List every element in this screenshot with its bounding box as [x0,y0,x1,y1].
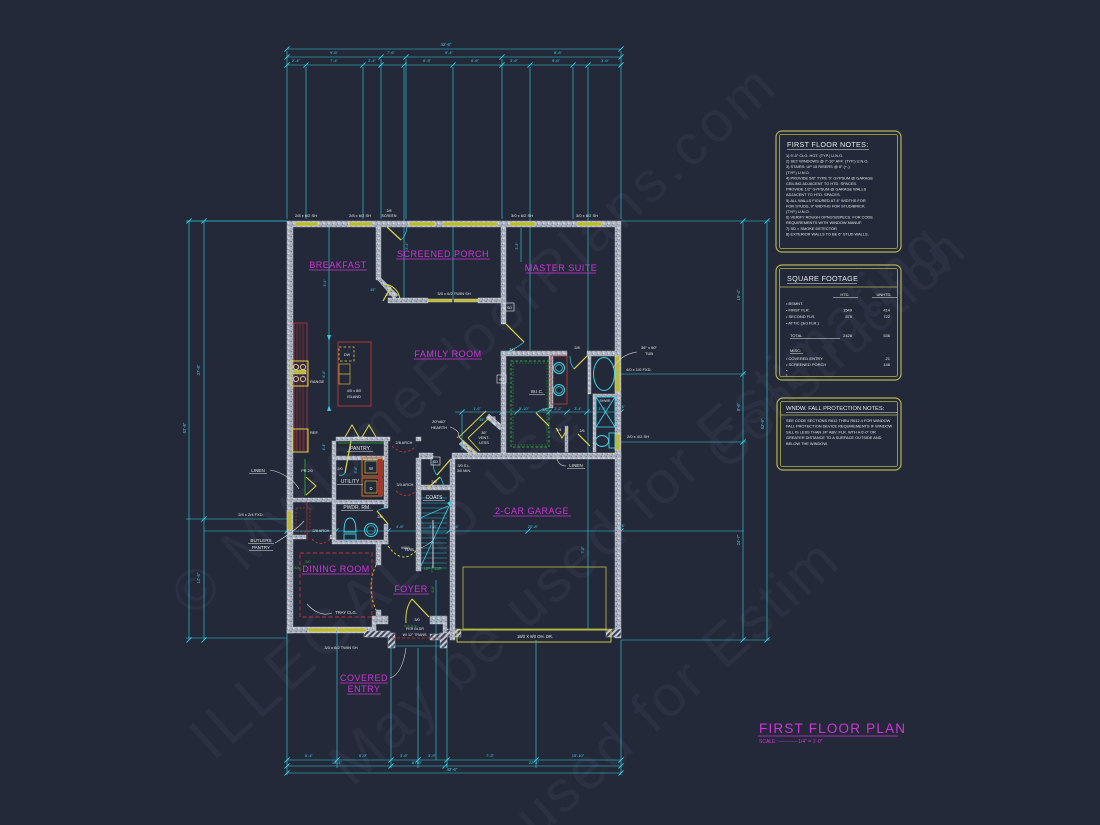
svg-text:• BSMNT.: • BSMNT. [786,301,803,306]
svg-text:5'-6": 5'-6" [354,466,358,474]
svg-text:6'-0": 6'-0" [322,370,326,378]
svg-text:6'-9": 6'-9" [359,753,368,758]
svg-text:BREAKFAST: BREAKFAST [309,260,367,270]
svg-text:LINEN: LINEN [569,463,583,468]
svg-text:• SECOND FLR.: • SECOND FLR. [786,314,815,319]
svg-text:1549: 1549 [843,308,853,313]
svg-text:2/8 x 6/2 SH: 2/8 x 6/2 SH [349,213,371,218]
svg-text:3/0: 3/0 [509,348,514,352]
svg-text:36" x 60": 36" x 60" [641,345,658,350]
svg-text:6': 6' [456,524,459,529]
svg-text:SHWR: SHWR [600,399,611,403]
svg-text:24'-7": 24'-7" [736,534,741,545]
svg-text:21: 21 [886,356,891,361]
svg-text:6'-8": 6'-8" [431,585,435,593]
svg-text:ADJACENT TO HTD. SPACES.: ADJACENT TO HTD. SPACES. [786,192,841,197]
svg-text:W: W [369,466,373,471]
svg-text:MAIL: MAIL [401,545,411,550]
svg-text:42'-6": 42'-6" [441,42,452,47]
svg-text:FALL PROTECTION DEVICE REQUIRE: FALL PROTECTION DEVICE REQUIREMENTS IF W… [786,424,893,429]
svg-text:3'-6": 3'-6" [400,753,409,758]
svg-text:2/4 x 2/4 FXD.: 2/4 x 2/4 FXD. [238,512,264,517]
svg-text:8) EXTERIOR WALLS TO BE 6" STU: 8) EXTERIOR WALLS TO BE 6" STUD WALLS. [786,231,869,236]
svg-text:2'-4": 2'-4" [368,58,377,63]
svg-text:5) ALL WALLS FIGURED AT 4" WID: 5) ALL WALLS FIGURED AT 4" WIDTHS FOR [786,198,866,203]
svg-text:2/8 ARCH: 2/8 ARCH [313,529,330,533]
svg-text:2/8 FR: 2/8 FR [385,293,397,297]
svg-text:SD: SD [433,460,439,464]
svg-text:3'-4": 3'-4" [574,407,582,411]
svg-text:6': 6' [622,524,625,528]
svg-text:2428: 2428 [843,333,853,338]
svg-text:W/ 12" TRANS.: W/ 12" TRANS. [403,633,428,637]
svg-text:3'-4": 3'-4" [515,242,519,250]
svg-text:3/0 x 6/2 SH: 3/0 x 6/2 SH [576,213,598,218]
svg-text:SEE CODE SECTIONS R612 THRU R6: SEE CODE SECTIONS R612 THRU R612.4 FOR W… [786,418,891,423]
svg-text:3/0 x 6/2 TWIN SH: 3/0 x 6/2 TWIN SH [324,645,357,650]
svg-text:20"x60": 20"x60" [432,419,446,424]
svg-text:BELOW THE WINDOW.: BELOW THE WINDOW. [786,441,828,446]
svg-text:2/8 ARCH: 2/8 ARCH [396,441,413,445]
svg-text:9'-6": 9'-6" [330,50,339,55]
svg-text:MASTER SUITE: MASTER SUITE [525,263,598,273]
svg-text:HEARTH: HEARTH [431,425,447,430]
svg-text:PR 2/0: PR 2/0 [354,436,366,440]
svg-text:FAMILY ROOM: FAMILY ROOM [414,349,481,359]
svg-text:MISC:: MISC: [790,348,801,353]
svg-text:VENT-: VENT- [478,436,490,440]
svg-text:• SCREENED PORCH: • SCREENED PORCH [786,362,826,367]
svg-text:ENTRY: ENTRY [348,684,381,694]
svg-text:SCREEN: SCREEN [382,214,397,218]
svg-text:3/0 MIN.: 3/0 MIN. [457,469,471,473]
svg-text:2/6: 2/6 [580,429,585,433]
svg-text:2-CAR GARAGE: 2-CAR GARAGE [495,506,569,516]
svg-text:2/0 x 4/2 SH: 2/0 x 4/2 SH [627,434,649,439]
svg-text:3/0: 3/0 [414,618,419,622]
svg-text:5'-6": 5'-6" [552,58,561,63]
svg-text:146: 146 [883,362,890,367]
svg-text:SQUARE FOOTAGE: SQUARE FOOTAGE [787,274,858,283]
svg-text:4/0 x 8/0: 4/0 x 8/0 [347,389,362,393]
svg-text:PROVIDE 1/2" GYPSUM @ GARAGE W: PROVIDE 1/2" GYPSUM @ GARAGE WALLS [786,187,867,192]
svg-text:36": 36" [481,431,487,435]
svg-text:4) PROVIDE 5/8" TYPE 'X' GYPSU: 4) PROVIDE 5/8" TYPE 'X' GYPSUM @ GARAGE [786,175,873,180]
svg-text:TOTAL: TOTAL [790,333,803,338]
svg-text:3'-4": 3'-4" [323,279,327,287]
svg-text:45°: 45° [479,418,485,422]
svg-text:FOR STUDS, 9" WIDTHS FOR STUD/: FOR STUDS, 9" WIDTHS FOR STUD/BRICK. [786,203,866,208]
svg-text:7'-6": 7'-6" [387,50,396,55]
svg-text:9'-4": 9'-4" [445,50,454,55]
svg-text:8'-6": 8'-6" [736,402,741,411]
svg-text:3/0 x 6/2 TWIN SH: 3/0 x 6/2 TWIN SH [437,291,470,296]
svg-text:3'-9": 3'-9" [428,753,437,758]
svg-text:6) VERIFY ROUGH OPNG'S/SPECS.: 6) VERIFY ROUGH OPNG'S/SPECS. FOR CODE [786,215,873,220]
svg-text:COATS: COATS [426,495,444,501]
svg-text:FIRST FLOOR PLAN: FIRST FLOOR PLAN [759,721,906,736]
svg-text:• ATTIC (3rd FLR.): • ATTIC (3rd FLR.) [786,321,820,326]
svg-text:8'-6": 8'-6" [554,50,563,55]
svg-text:20'-8": 20'-8" [528,524,539,529]
svg-text:2/0: 2/0 [337,467,342,471]
svg-text:(TYP.) U.N.O.: (TYP.) U.N.O. [786,170,810,175]
svg-text:7'-4": 7'-4" [330,58,339,63]
svg-text:TUB: TUB [645,351,653,356]
svg-text:37'-8": 37'-8" [196,364,201,375]
svg-text:REQUIREMENTS WITH WINDOW MANUF: REQUIREMENTS WITH WINDOW MANUF. [786,220,862,225]
svg-text:TRAY CLG.: TRAY CLG. [335,610,357,615]
svg-text:4'-6": 4'-6" [396,524,405,529]
svg-text:W.I.C.: W.I.C. [531,389,544,394]
svg-text:3/0 x 6/2 SH: 3/0 x 6/2 SH [511,213,533,218]
svg-text:(TYP.) U.N.O.: (TYP.) U.N.O. [786,209,810,214]
svg-text:15R: 15R [434,566,442,571]
svg-text:3'-6": 3'-6" [510,58,519,63]
svg-text:SD: SD [499,378,505,382]
svg-text:PWDR. RM.: PWDR. RM. [343,505,370,511]
svg-text:2/8: 2/8 [574,346,579,350]
svg-text:6'-10": 6'-10" [412,760,423,765]
svg-text:SCREENED PORCH: SCREENED PORCH [397,249,489,259]
svg-text:PR 2/0: PR 2/0 [301,469,313,473]
svg-text:LINEN: LINEN [251,468,265,473]
svg-text:6': 6' [622,405,625,409]
svg-text:FIRST FLOOR NOTES:: FIRST FLOOR NOTES: [787,140,869,149]
svg-text:UNHTD.: UNHTD. [876,292,891,297]
svg-text:5'-10": 5'-10" [519,407,529,411]
svg-text:42'-6": 42'-6" [447,767,458,772]
svg-text:7'-3": 7'-3" [486,753,495,758]
svg-text:2/6: 2/6 [377,515,382,519]
svg-text:6'-6": 6'-6" [471,58,480,63]
svg-text:DW: DW [344,353,351,357]
svg-text:2/6: 2/6 [431,480,436,484]
svg-text:52'-8": 52'-8" [182,422,187,433]
svg-text:7'-0": 7'-0" [581,546,585,554]
svg-text:3) STAIRS: UP 15 RISERS @ 8" (: 3) STAIRS: UP 15 RISERS @ 8" (+-) [786,164,850,169]
svg-text:SCALE: ------------1/4" = 1'-0: SCALE: ------------1/4" = 1'-0" [759,739,823,745]
svg-text:14'-5": 14'-5" [196,572,201,583]
svg-text:22'-1": 22'-1" [529,760,540,765]
svg-text:2'-2": 2'-2" [554,407,562,411]
svg-text:8/4: 8/4 [294,566,299,570]
svg-text:536: 536 [883,333,890,338]
svg-text:6'-3": 6'-3" [423,58,432,63]
svg-text:REF.: REF. [310,430,319,435]
svg-text:PANTRY: PANTRY [252,545,270,550]
svg-text:875: 875 [845,314,852,319]
svg-text:ISLAND: ISLAND [347,395,361,399]
svg-text:7) SD = SMOKE DETECTOR: 7) SD = SMOKE DETECTOR [786,226,837,231]
svg-text:2/8: 2/8 [387,209,392,213]
svg-text:HTD.: HTD. [840,292,849,297]
svg-text:SILL IS LESS THAN 24" ABV. FLR: SILL IS LESS THAN 24" ABV. FLR. WTH A 6'… [786,429,876,434]
svg-text:15'-4": 15'-4" [736,289,741,300]
svg-text:SD: SD [507,306,513,310]
svg-text:CEILING ADJACENT TO HTD. SPACE: CEILING ADJACENT TO HTD. SPACES. [786,181,857,186]
svg-text:PANTRY: PANTRY [350,446,370,452]
svg-text:1) 9'-0" CLG. HGT. (TYP.) U.N: 1) 9'-0" CLG. HGT. (TYP.) U.N.O. [786,153,843,158]
svg-text:UP: UP [424,566,430,571]
svg-text:LESS: LESS [479,441,489,445]
svg-text:4'-4": 4'-4" [322,443,326,451]
svg-text:3/0 S.L.: 3/0 S.L. [457,464,470,468]
svg-text:2'-4": 2'-4" [292,58,301,63]
svg-text:2) SET WINDOWS @ 7'-10" AFF. (: 2) SET WINDOWS @ 7'-10" AFF. (TYP.) U.N.… [786,159,868,164]
svg-text:1'-6": 1'-6" [473,407,481,411]
svg-text:15'-10": 15'-10" [572,753,585,758]
svg-text:PER BLDR: PER BLDR [406,627,424,631]
svg-text:1/4: 1/4 [557,428,562,432]
svg-text:45°: 45° [370,288,376,292]
svg-text:414: 414 [883,308,890,313]
svg-text:BUTLERS: BUTLERS [250,538,271,543]
svg-text:COVERED: COVERED [340,673,388,683]
svg-text:18/0 X 8/0 OH. DR.: 18/0 X 8/0 OH. DR. [517,634,553,639]
svg-text:4/0 x 1/0 FXD.: 4/0 x 1/0 FXD. [626,367,652,372]
svg-text:3/0 ARCH: 3/0 ARCH [397,483,414,487]
svg-text:DINING ROOM: DINING ROOM [302,564,370,574]
svg-text:UTILITY: UTILITY [341,479,360,485]
svg-text:52'-9": 52'-9" [760,418,765,429]
svg-text:D: D [369,486,372,491]
svg-text:2/8 x 6/2 SH: 2/8 x 6/2 SH [295,213,317,218]
svg-text:GREATER DISTANCE TO A SURFACE: GREATER DISTANCE TO A SURFACE OUTSIDE AN… [786,435,882,440]
svg-text:FOYER: FOYER [394,584,428,594]
svg-text:• FIRST FLR.: • FIRST FLR. [786,308,810,313]
svg-text:WNDW. FALL PROTECTION NOTES:: WNDW. FALL PROTECTION NOTES: [786,406,885,412]
svg-text:722: 722 [883,314,890,319]
svg-text:3'-6": 3'-6" [601,58,610,63]
svg-text:6'-4": 6'-4" [305,753,314,758]
svg-text:• COVERED ENTRY: • COVERED ENTRY [786,356,823,361]
svg-text:RANGE: RANGE [310,379,325,384]
